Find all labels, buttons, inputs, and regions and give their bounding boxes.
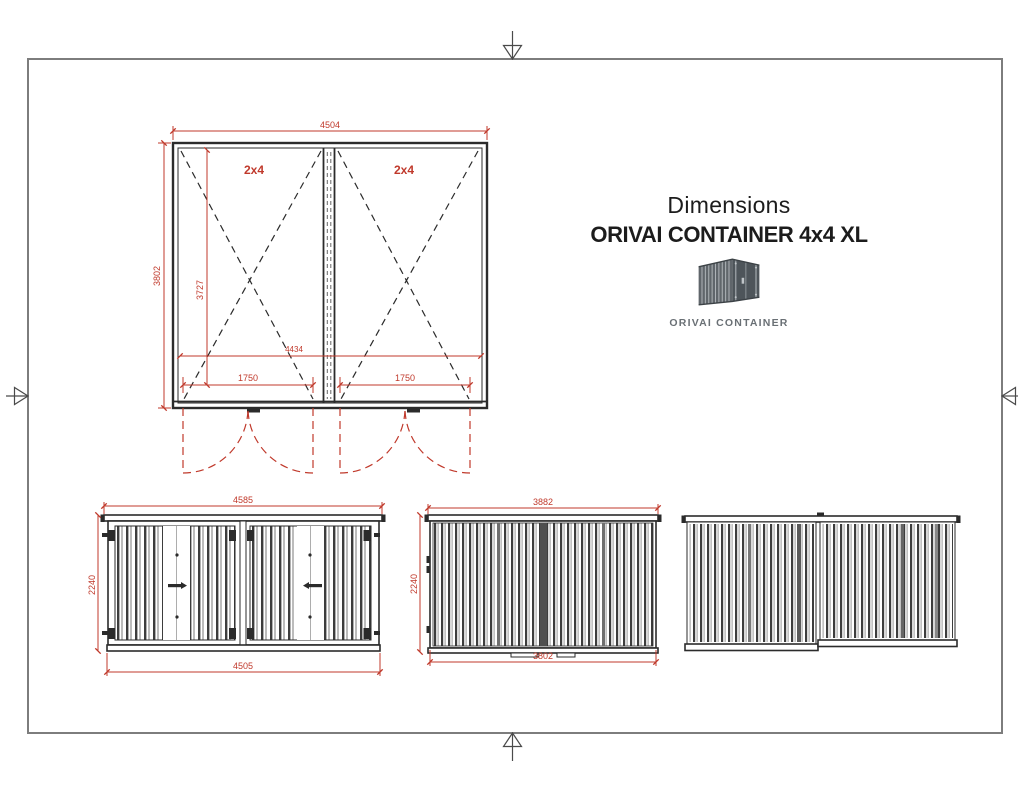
side-elevation: 3882 2240 3802: [409, 497, 662, 666]
dim-plan-inner-depth: 3727: [195, 280, 205, 300]
registration-mark-top: [504, 31, 522, 59]
cad-drawing: 4504 3802 3727 4434 1750 1750 2x4 2x4: [0, 0, 1024, 791]
container-logo-icon: [691, 255, 767, 309]
dim-right-door-opening: 1750: [395, 373, 415, 383]
drawing-title: ORIVAI CONTAINER 4x4 XL: [579, 222, 879, 248]
door-swings: [183, 408, 470, 473]
registration-mark-right: [1002, 388, 1018, 405]
title-block: Dimensions ORIVAI CONTAINER 4x4 XL: [579, 192, 879, 248]
dim-front-base-width: 4505: [233, 661, 253, 671]
plan-left-cell-label: 2x4: [244, 163, 264, 177]
plan-view: 4504 3802 3727 4434 1750 1750 2x4 2x4: [152, 120, 487, 473]
logo-caption: ORIVAI CONTAINER: [656, 317, 802, 329]
dim-plan-overall-width: 4504: [320, 120, 340, 130]
plan-right-cell-label: 2x4: [394, 163, 414, 177]
rear-elevation: [682, 513, 961, 651]
dim-front-height: 2240: [87, 575, 97, 595]
dim-side-base-width: 3802: [533, 651, 553, 661]
dim-plan-overall-depth: 3802: [152, 266, 162, 286]
dim-side-height: 2240: [409, 574, 419, 594]
dim-front-roof-width: 4585: [233, 495, 253, 505]
dim-plan-inner-width: 4434: [285, 345, 303, 354]
registration-mark-bottom: [504, 733, 522, 761]
dim-left-door-opening: 1750: [238, 373, 258, 383]
dim-side-roof-width: 3882: [533, 497, 553, 507]
registration-mark-left: [6, 388, 28, 405]
brand-logo: ORIVAI CONTAINER: [656, 255, 802, 329]
front-elevation: 4585 2240 4505: [87, 495, 386, 676]
drawing-subtitle: Dimensions: [579, 192, 879, 219]
